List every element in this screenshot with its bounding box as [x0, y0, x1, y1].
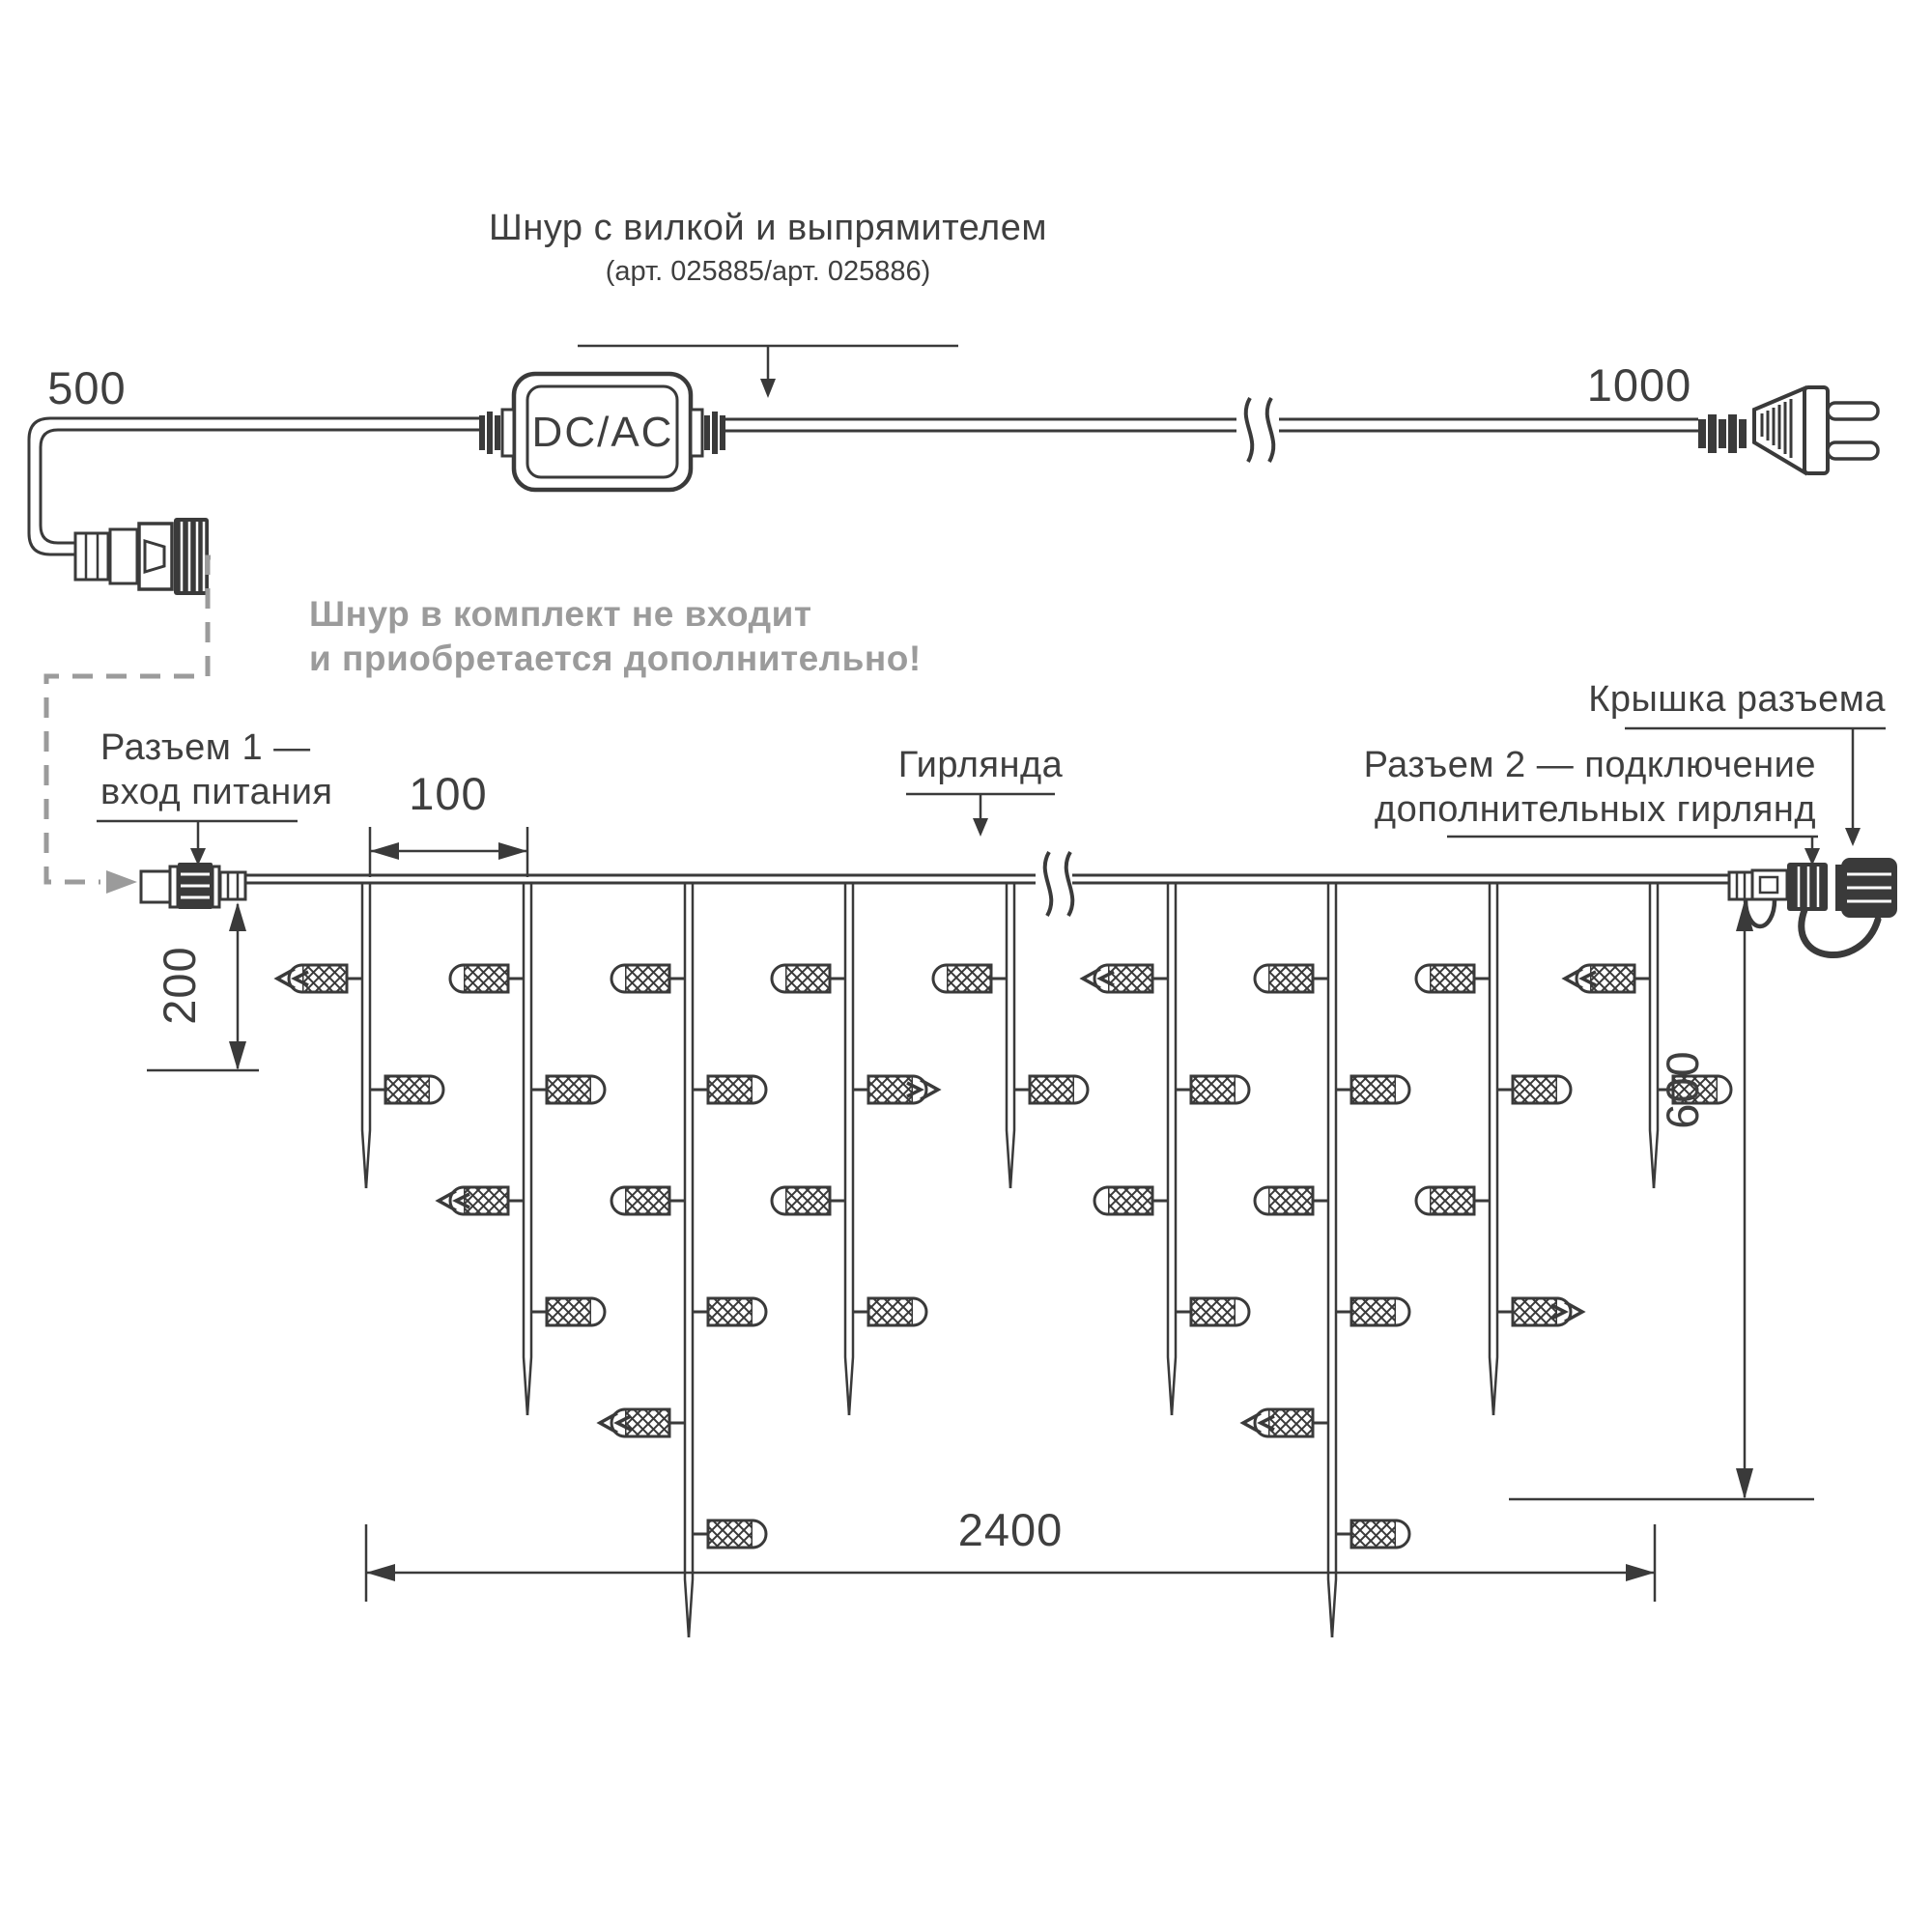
not-included-dashed-path [46, 557, 211, 894]
cord-label-line2: (арт. 025885/арт. 025886) [606, 256, 931, 287]
connector-cap [1835, 858, 1897, 918]
led-bulb [1336, 1076, 1409, 1103]
led-bulb [933, 965, 1007, 992]
connector1-label: Разъем 1 — вход питания [97, 727, 333, 866]
led-bulb [531, 1298, 605, 1325]
cap-label-text: Крышка разъема [1588, 679, 1886, 720]
led-bulb [439, 1187, 524, 1214]
dashed-arrowhead [106, 870, 137, 894]
dim-1000: 1000 [1587, 359, 1692, 411]
garland-main-wire [245, 852, 1729, 916]
led-bulb [370, 1076, 443, 1103]
connector1-label-line1: Разъем 1 — [100, 727, 311, 768]
connector2-label-line2: дополнительных гирлянд [1375, 789, 1816, 830]
garland-drop [1243, 883, 1409, 1637]
dim-500: 500 [47, 362, 126, 413]
dim-2400: 2400 [958, 1504, 1064, 1555]
cord-end-connector [75, 518, 209, 595]
led-bulb [1336, 1298, 1409, 1325]
connector1-label-line2: вход питания [100, 772, 333, 812]
dim-600: 600 [1657, 1050, 1708, 1128]
plug-strain-relief [1698, 414, 1747, 453]
mains-plug [1698, 387, 1878, 473]
led-bulb [853, 1076, 938, 1103]
led-bulb [611, 965, 685, 992]
led-bulb [853, 1298, 926, 1325]
led-bulb [1176, 1076, 1249, 1103]
led-bulb [1416, 965, 1490, 992]
cord-label: Шнур с вилкой и выпрямителем (арт. 02588… [489, 208, 1047, 398]
connector2-label: Разъем 2 — подключение дополнительных ги… [1364, 745, 1820, 866]
led-bulb [1565, 965, 1650, 992]
led-bulb [1497, 1298, 1582, 1325]
led-bulb [1255, 1187, 1328, 1214]
dim-200: 200 [154, 946, 205, 1024]
garland-drop [1416, 883, 1582, 1415]
led-bulb [693, 1076, 766, 1103]
garland-label: Гирлянда [898, 745, 1064, 837]
dim-100: 100 [409, 768, 487, 819]
dcac-converter: DC/AC [479, 374, 725, 490]
led-bulb [1083, 965, 1168, 992]
dim-100-group: 100 [370, 768, 527, 877]
dim-600-group: 600 [1509, 900, 1814, 1499]
cord-right-wire [725, 398, 1698, 462]
led-bulb [1014, 1076, 1088, 1103]
led-bulb [531, 1076, 605, 1103]
garland-label-text: Гирлянда [898, 745, 1064, 785]
led-bulb [693, 1520, 766, 1548]
connector2-label-line1: Разъем 2 — подключение [1364, 745, 1816, 785]
connector-1 [141, 863, 245, 909]
led-bulb [1176, 1298, 1249, 1325]
led-bulb [1255, 965, 1328, 992]
led-bulb [611, 1187, 685, 1214]
garland-drop [439, 883, 605, 1415]
garland-drop [277, 883, 443, 1188]
led-bulb [1094, 1187, 1168, 1214]
garland-drop [1565, 883, 1731, 1188]
led-bulb [772, 965, 845, 992]
garland-drop [933, 883, 1088, 1188]
led-bulb [450, 965, 524, 992]
garland-drop [600, 883, 766, 1637]
led-bulb [600, 1409, 685, 1436]
led-bulb [772, 1187, 845, 1214]
connector-2 [1729, 858, 1897, 955]
plug-prong-bottom [1828, 442, 1878, 459]
garland-break-symbol [1045, 852, 1073, 916]
garland-drop [772, 883, 938, 1415]
led-bulb [1497, 1076, 1571, 1103]
cord-label-line1: Шнур с вилкой и выпрямителем [489, 208, 1047, 248]
dim-200-group: 200 [147, 902, 259, 1070]
note-line1: Шнур в комплект не входит [309, 594, 811, 634]
not-included-note: Шнур в комплект не входит и приобретаетс… [309, 594, 922, 678]
led-bulb [1336, 1520, 1409, 1548]
garland-drop [1083, 883, 1249, 1415]
led-bulb [277, 965, 362, 992]
note-line2: и приобретается дополнительно! [309, 639, 922, 678]
led-bulb [693, 1298, 766, 1325]
led-bulb [1416, 1187, 1490, 1214]
plug-prong-top [1828, 403, 1878, 419]
cord-break-symbol [1246, 398, 1274, 462]
led-bulb [1243, 1409, 1328, 1436]
dcac-label: DC/AC [532, 409, 674, 456]
dim-2400-group: 2400 [366, 1504, 1655, 1602]
garland-diagram: DC/AC [0, 0, 1932, 1932]
